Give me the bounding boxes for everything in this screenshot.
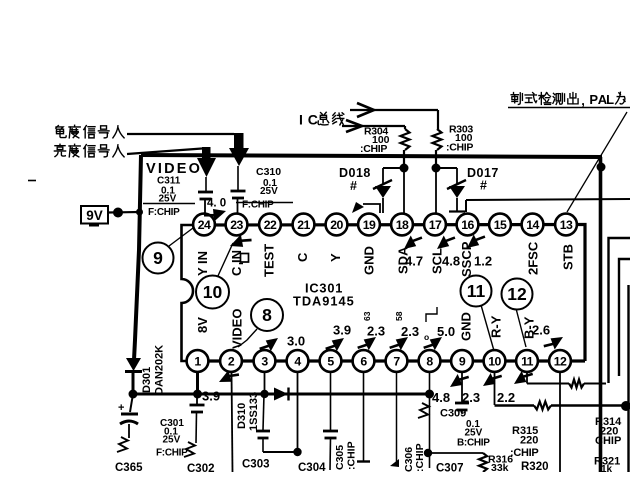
svg-text:o: o [424, 332, 429, 342]
svg-text:C302: C302 [187, 463, 215, 472]
svg-text:2.6: 2.6 [532, 323, 550, 338]
svg-text:25V: 25V [260, 186, 278, 197]
svg-text:17: 17 [429, 218, 442, 232]
svg-text:STB: STB [561, 244, 576, 270]
svg-text:+: + [118, 402, 124, 414]
svg-text:15: 15 [494, 218, 507, 232]
svg-text:22: 22 [264, 218, 277, 232]
svg-text:3: 3 [261, 354, 268, 368]
svg-text:4. 0: 4. 0 [207, 198, 226, 210]
svg-text:8: 8 [426, 354, 433, 368]
svg-text:4.8: 4.8 [432, 390, 450, 405]
svg-text:18: 18 [396, 218, 409, 232]
svg-text:63: 63 [362, 311, 372, 321]
svg-text:C304: C304 [298, 462, 326, 472]
svg-text:,: , [581, 93, 585, 108]
svg-text:#: # [350, 179, 357, 193]
svg-text::CHIP: :CHIP [510, 447, 538, 459]
svg-text:20: 20 [330, 218, 343, 232]
svg-text:12: 12 [507, 284, 527, 304]
svg-text:GND: GND [459, 312, 474, 341]
svg-text:DAN202K: DAN202K [154, 345, 166, 395]
svg-text:R-Y: R-Y [489, 315, 504, 338]
svg-text:5.0: 5.0 [437, 324, 455, 339]
svg-text:TEST: TEST [262, 244, 277, 277]
svg-text:8V: 8V [195, 317, 210, 333]
svg-text:R320: R320 [521, 461, 549, 472]
svg-text:D301: D301 [141, 367, 153, 393]
svg-text:C307: C307 [436, 463, 464, 473]
svg-text:8: 8 [262, 305, 272, 325]
svg-text:19: 19 [363, 218, 376, 232]
svg-text:F:CHIP: F:CHIP [148, 207, 180, 218]
svg-text:Y: Y [328, 253, 343, 262]
svg-text:24: 24 [198, 218, 211, 232]
svg-text:2FSC: 2FSC [526, 241, 541, 275]
svg-text:2.3: 2.3 [401, 324, 419, 339]
svg-text:58: 58 [394, 311, 404, 321]
svg-text:TDA9145: TDA9145 [293, 294, 355, 309]
svg-text:C: C [295, 252, 310, 262]
svg-text:C303: C303 [242, 459, 270, 471]
svg-text:10: 10 [203, 282, 223, 302]
svg-text:2: 2 [228, 354, 235, 368]
svg-text:14: 14 [526, 218, 539, 232]
svg-text:12: 12 [554, 354, 567, 368]
svg-text:GND: GND [362, 246, 377, 275]
svg-text:13: 13 [560, 218, 573, 232]
svg-text:C365: C365 [115, 462, 143, 472]
svg-text:1k: 1k [601, 464, 613, 472]
svg-text:#: # [480, 179, 487, 193]
svg-text:9: 9 [153, 248, 163, 268]
svg-text:F:CHIP: F:CHIP [156, 448, 188, 459]
svg-text:D310: D310 [236, 403, 248, 429]
svg-text:C: C [308, 111, 318, 127]
svg-text::CHIP: :CHIP [414, 443, 426, 472]
svg-text:L: L [606, 92, 614, 107]
svg-text:9: 9 [459, 354, 466, 368]
svg-text:B:CHIP: B:CHIP [457, 438, 490, 449]
svg-text:Y IN: Y IN [195, 251, 210, 276]
svg-text:7: 7 [393, 354, 400, 368]
svg-text:33k: 33k [491, 462, 509, 472]
svg-text:25V: 25V [163, 435, 181, 446]
svg-text:23: 23 [230, 218, 243, 232]
svg-text:16: 16 [461, 218, 474, 232]
svg-text:4.8: 4.8 [442, 254, 460, 269]
svg-text:21: 21 [297, 218, 310, 232]
svg-text:D018: D018 [339, 166, 371, 180]
svg-text:220: 220 [520, 435, 538, 447]
svg-text:2.3: 2.3 [367, 324, 385, 339]
svg-text:9V: 9V [86, 208, 103, 223]
svg-text:CHIP: CHIP [595, 435, 621, 447]
svg-text:4: 4 [294, 354, 301, 368]
svg-text:2.2: 2.2 [497, 390, 515, 405]
svg-text::CHIP: :CHIP [446, 142, 473, 154]
svg-text:C305: C305 [334, 445, 346, 470]
svg-text:C309: C309 [440, 408, 466, 420]
svg-text:1.2: 1.2 [474, 254, 492, 269]
svg-text:I: I [299, 111, 303, 127]
svg-text:F:CHIP: F:CHIP [242, 200, 274, 211]
svg-text:11: 11 [521, 354, 534, 368]
svg-text:11: 11 [467, 281, 486, 301]
svg-text:3.9: 3.9 [333, 323, 351, 338]
svg-text:5: 5 [327, 354, 334, 368]
svg-text:1SS133: 1SS133 [248, 392, 260, 431]
svg-text:1: 1 [194, 354, 201, 368]
svg-text:3.0: 3.0 [287, 334, 305, 349]
svg-text:C310: C310 [256, 166, 281, 178]
svg-text::CHIP: :CHIP [360, 143, 387, 155]
svg-text:VIDEO: VIDEO [230, 309, 245, 349]
svg-text:4.7: 4.7 [405, 254, 423, 269]
svg-text::CHIP: :CHIP [346, 441, 358, 470]
svg-text:10: 10 [488, 354, 501, 368]
svg-text:3.9: 3.9 [202, 389, 220, 404]
svg-text:6: 6 [360, 354, 367, 368]
